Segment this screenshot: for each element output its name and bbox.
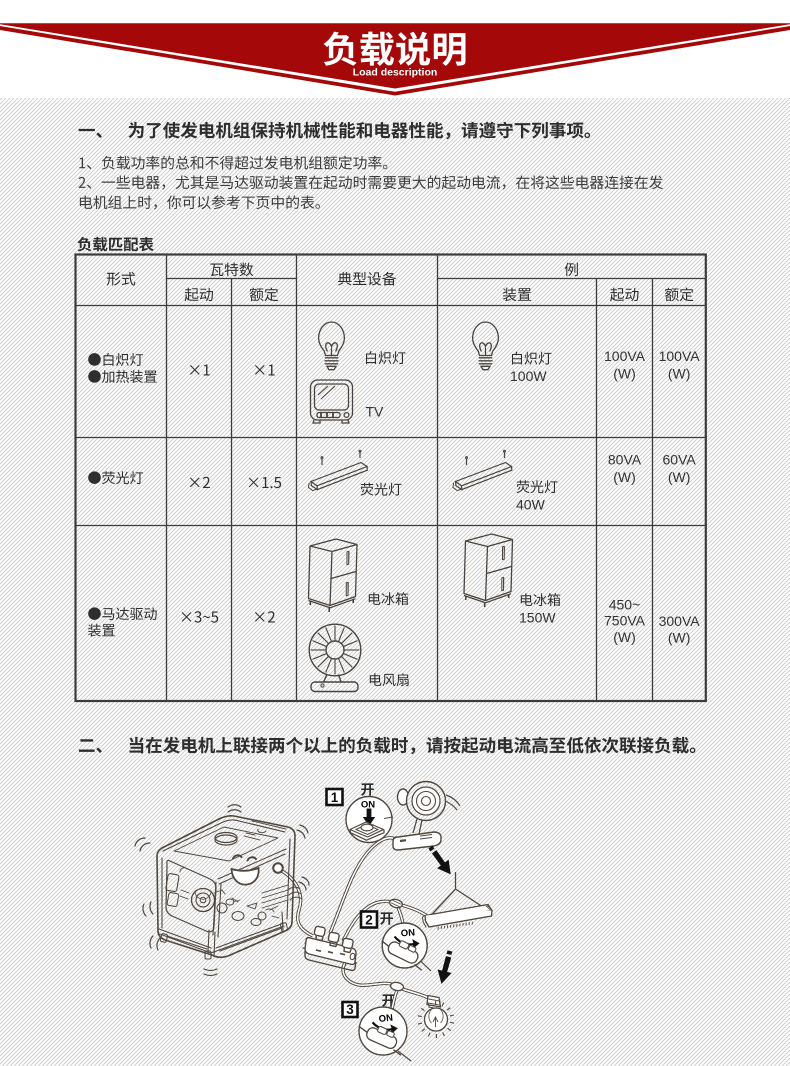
svg-text:Load description: Load description	[353, 66, 438, 78]
svg-text:TV: TV	[366, 404, 385, 420]
svg-text:(W): (W)	[613, 469, 636, 485]
svg-text:(W): (W)	[668, 366, 691, 382]
svg-text:(W): (W)	[613, 366, 636, 382]
svg-text:60VA: 60VA	[662, 452, 696, 468]
svg-text:750VA: 750VA	[604, 613, 646, 629]
svg-text:ON: ON	[400, 927, 415, 939]
svg-text:1: 1	[331, 790, 339, 805]
svg-text:300VA: 300VA	[659, 613, 701, 629]
svg-text:3: 3	[346, 1002, 354, 1017]
svg-text:(W): (W)	[668, 630, 691, 646]
svg-text:(W): (W)	[668, 469, 691, 485]
svg-text:100W: 100W	[510, 368, 547, 384]
svg-text:80VA: 80VA	[608, 452, 642, 468]
svg-text:450~: 450~	[609, 597, 641, 613]
svg-text:2: 2	[365, 912, 373, 927]
svg-text:100VA: 100VA	[659, 348, 701, 364]
svg-text:100VA: 100VA	[604, 348, 646, 364]
svg-text:40W: 40W	[516, 497, 546, 513]
svg-text:(W): (W)	[613, 629, 636, 645]
svg-text:150W: 150W	[519, 610, 556, 626]
svg-text:ON: ON	[378, 1013, 393, 1025]
